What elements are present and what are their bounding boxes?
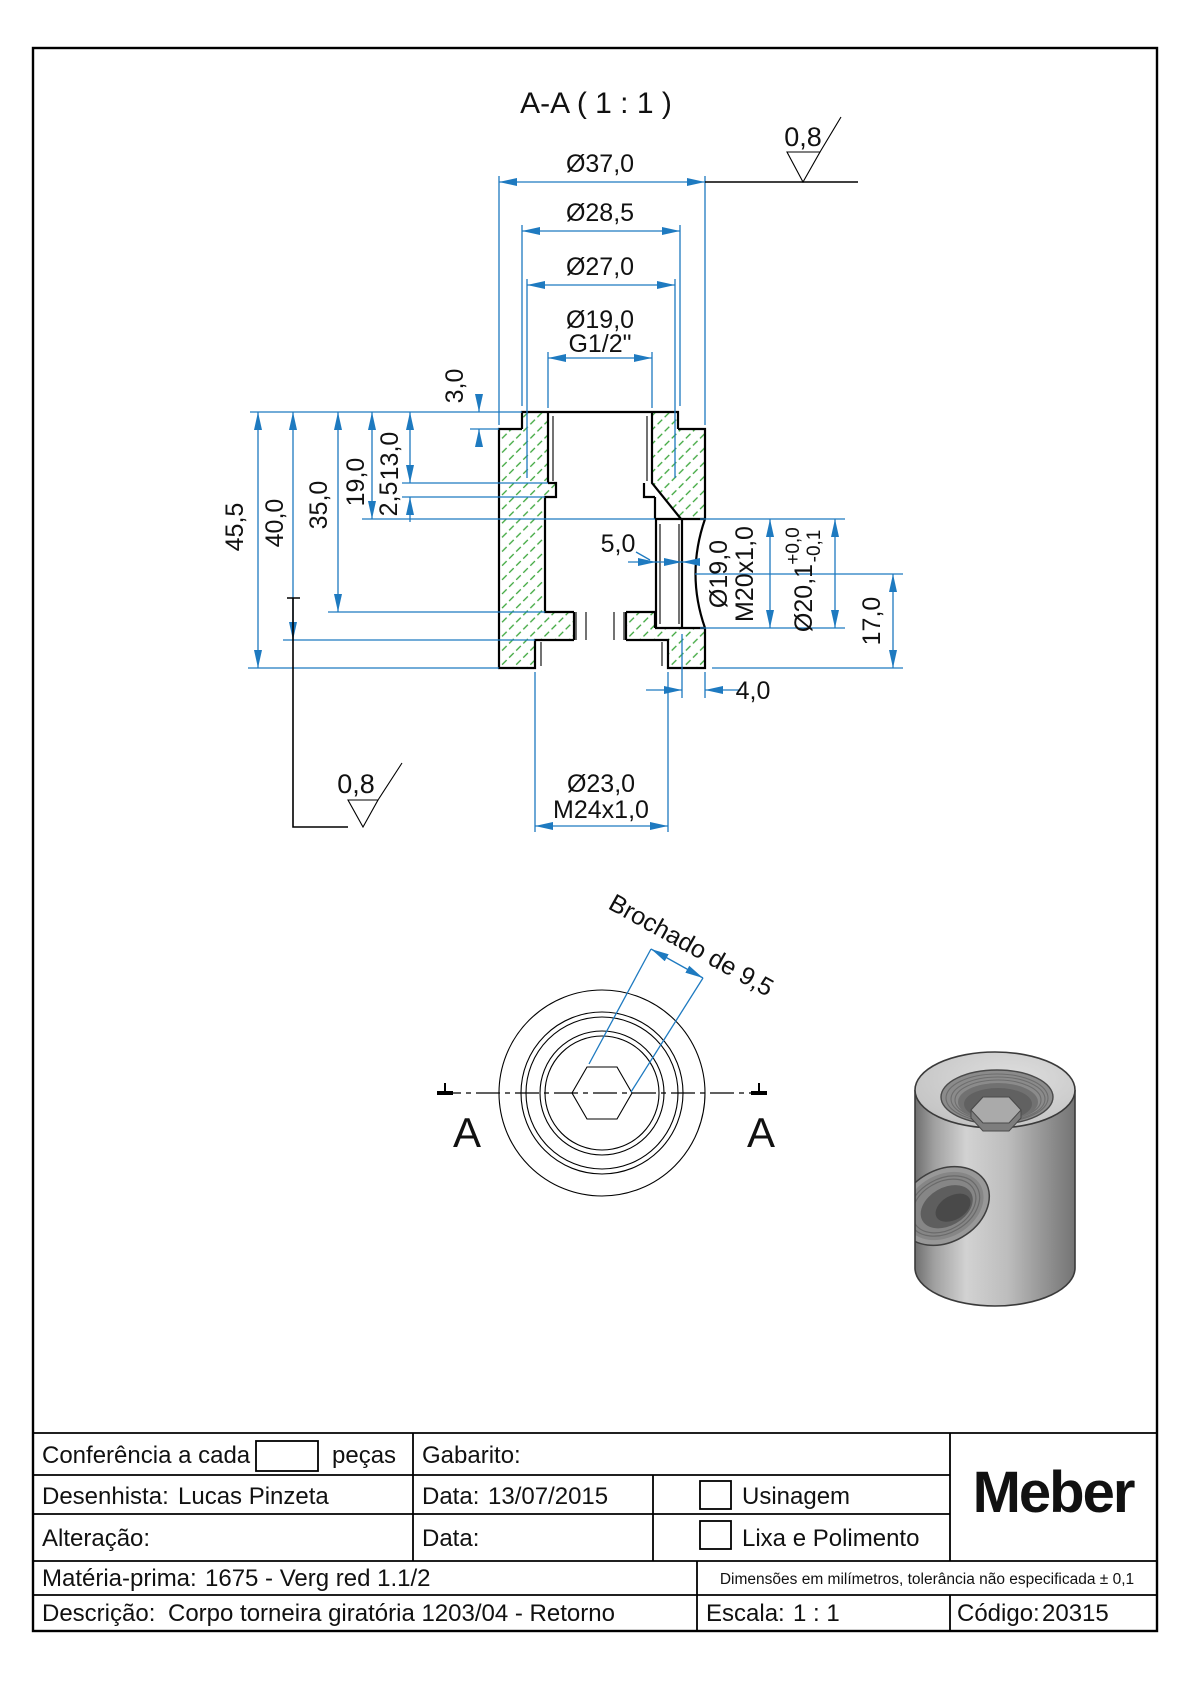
- dim-w50: 5,0: [601, 530, 636, 558]
- tolerancia-note: Dimensões em milímetros, tolerância não …: [720, 1571, 1134, 1588]
- broach-dimension: Brochado de 9,5: [589, 889, 778, 1092]
- data1-value: 13/07/2015: [488, 1483, 608, 1510]
- descricao-label: Descrição:: [42, 1600, 155, 1627]
- conferencia-count-box: [256, 1441, 318, 1471]
- section-view: A-A ( 1 : 1 ): [221, 87, 903, 832]
- dim-d23: Ø23,0: [567, 770, 635, 798]
- descricao-value: Corpo torneira giratória 1203/04 - Retor…: [168, 1600, 615, 1627]
- dim-d201-tol-plus: +0,0: [783, 527, 804, 565]
- dim-h170: 17,0: [858, 597, 886, 646]
- bottom-view: A A Brochado de 9,5: [437, 889, 778, 1196]
- data1-label: Data:: [422, 1483, 479, 1510]
- escala-label: Escala:: [706, 1600, 785, 1627]
- dim-h400: 40,0: [261, 499, 289, 548]
- usinagem-checkbox: [700, 1481, 731, 1509]
- surface-finish-bottom-value: 0,8: [337, 769, 375, 799]
- desenhista-value: Lucas Pinzeta: [178, 1483, 329, 1510]
- drawing-canvas: A-A ( 1 : 1 ): [0, 0, 1190, 1684]
- company-logo: Meber: [973, 1460, 1135, 1525]
- section-arrow-label-left: A: [453, 1109, 481, 1156]
- dim-h455: 45,5: [221, 503, 249, 552]
- usinagem-label: Usinagem: [742, 1483, 850, 1510]
- gabarito-label: Gabarito:: [422, 1442, 521, 1469]
- dim-d201-tol-minus: -0,1: [804, 530, 825, 563]
- broach-note: Brochado de 9,5: [604, 889, 778, 1002]
- escala-value: 1 : 1: [793, 1600, 840, 1627]
- dim-h190: 19,0: [342, 458, 370, 507]
- dim-m20: M20x1,0: [731, 526, 759, 622]
- surface-finish-icon: 0,8: [784, 117, 841, 182]
- dim-d285: Ø28,5: [566, 199, 634, 227]
- conferencia-suffix: peças: [332, 1442, 396, 1469]
- materia-value: 1675 - Verg red 1.1/2: [205, 1565, 431, 1592]
- surface-finish-top-value: 0,8: [784, 122, 822, 152]
- dim-d27: Ø27,0: [566, 253, 634, 281]
- desenhista-label: Desenhista:: [42, 1483, 169, 1510]
- dim-h25: 2,5: [375, 482, 403, 517]
- codigo-value: 20315: [1042, 1600, 1109, 1627]
- dim-w40: 4,0: [736, 677, 771, 705]
- alteracao-label: Alteração:: [42, 1525, 150, 1552]
- dim-h130: 13,0: [376, 432, 404, 481]
- section-view-title: A-A ( 1 : 1 ): [520, 87, 672, 120]
- section-arrow-label-right: A: [747, 1109, 775, 1156]
- title-block: Conferência a cada peças Gabarito: Desen…: [33, 1433, 1157, 1631]
- dim-m24: M24x1,0: [553, 796, 649, 824]
- dim-d201: Ø20,1: [790, 564, 818, 632]
- materia-label: Matéria-prima:: [42, 1565, 197, 1592]
- data2-label: Data:: [422, 1525, 479, 1552]
- lixa-label: Lixa e Polimento: [742, 1525, 919, 1552]
- dim-g12: G1/2": [568, 330, 631, 358]
- dim-h350: 35,0: [305, 481, 333, 530]
- conferencia-label: Conferência a cada: [42, 1442, 251, 1469]
- dim-h30: 3,0: [441, 369, 469, 404]
- codigo-label: Código:: [957, 1600, 1040, 1627]
- hex-boss: [971, 1097, 1021, 1131]
- surface-finish-icon: 0,8: [287, 598, 402, 827]
- dim-d37: Ø37,0: [566, 150, 634, 178]
- drawing-sheet: A-A ( 1 : 1 ): [0, 0, 1190, 1684]
- lixa-checkbox: [700, 1521, 731, 1549]
- dim-d19-side: Ø19,0: [705, 540, 733, 608]
- part-3d-render: [884, 1052, 1075, 1306]
